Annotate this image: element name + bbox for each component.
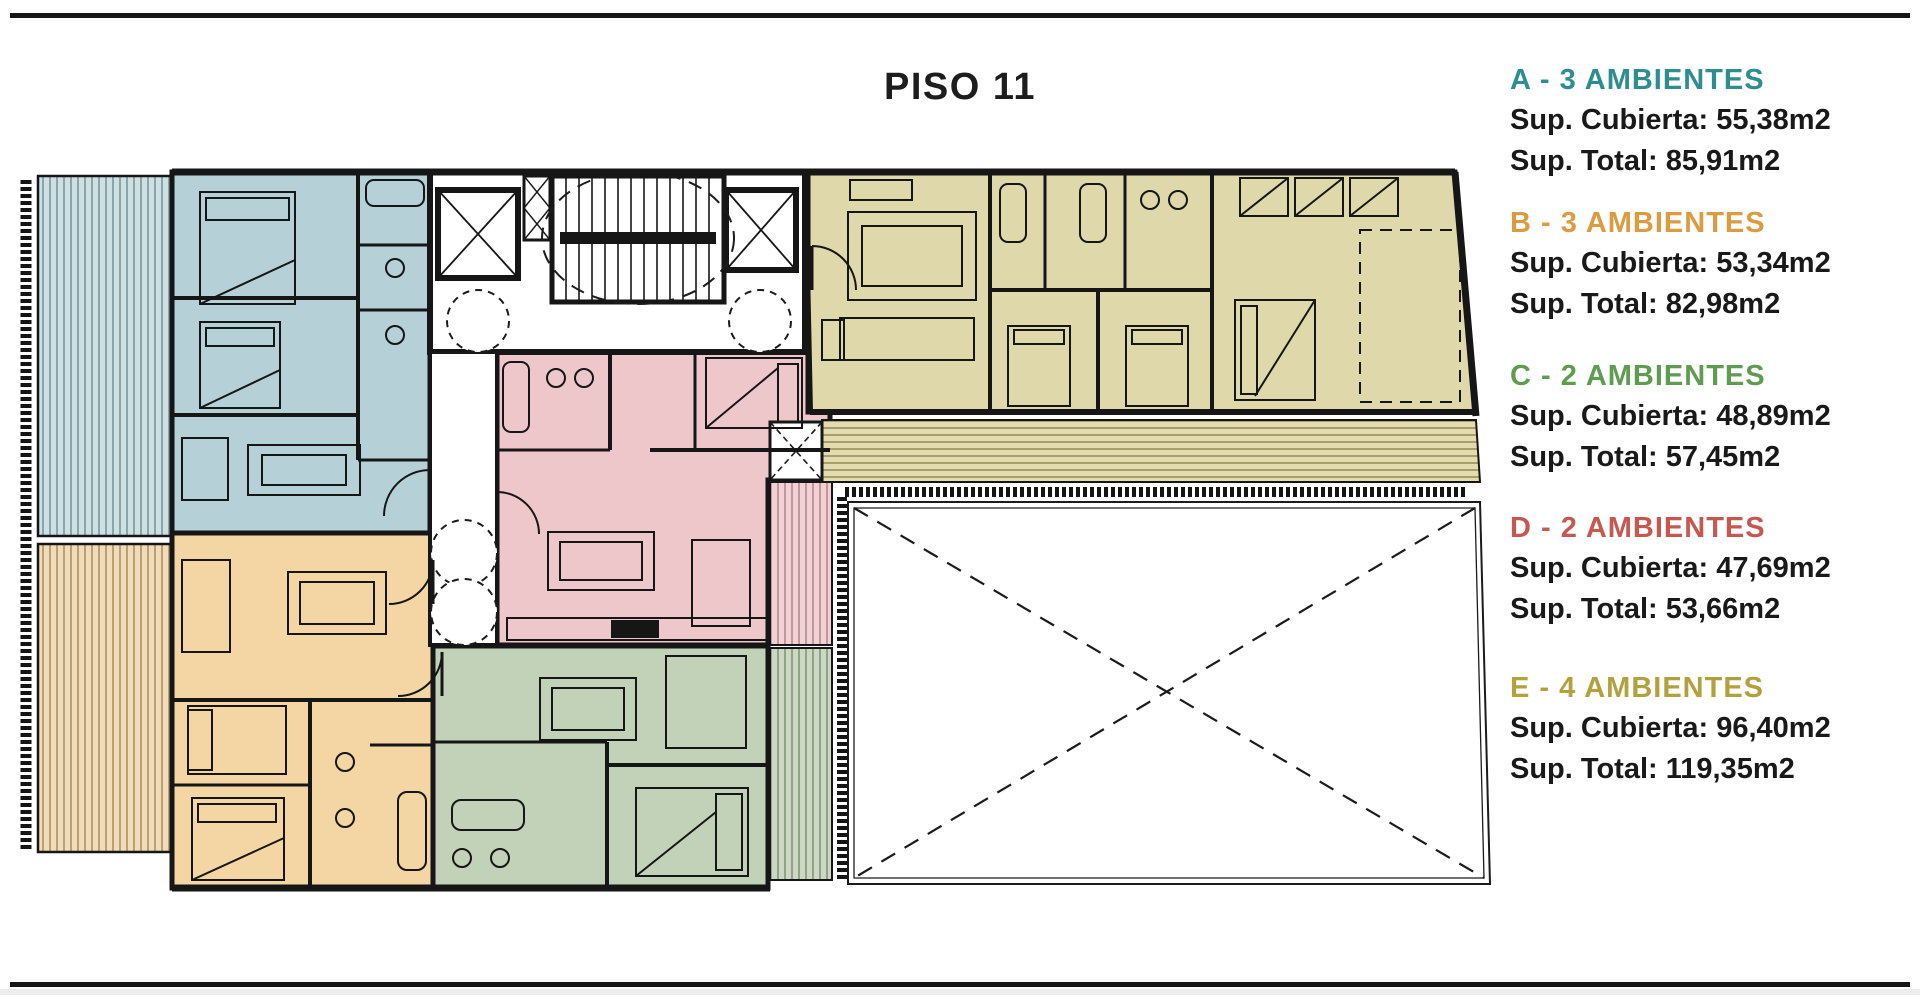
balcony-unit-b	[38, 544, 172, 852]
legend-unit-a-title: A - 3 AMBIENTES	[1510, 60, 1910, 100]
legend-unit-b-total: Sup. Total: 82,98m2	[1510, 284, 1910, 325]
legend-unit-e-total: Sup. Total: 119,35m2	[1510, 749, 1910, 790]
legend-unit-b: B - 3 AMBIENTES Sup. Cubierta: 53,34m2 S…	[1510, 203, 1910, 325]
balcony-unit-e	[822, 420, 1480, 482]
balcony-unit-c	[770, 648, 832, 880]
legend-unit-c-total: Sup. Total: 57,45m2	[1510, 437, 1910, 478]
balcony-unit-d	[770, 482, 832, 645]
legend-unit-e-cubierta: Sup. Cubierta: 96,40m2	[1510, 708, 1910, 749]
unit-a-area	[172, 172, 430, 533]
duct-shaft-icon	[524, 176, 550, 240]
elevator-left-icon	[438, 190, 518, 278]
legend-unit-d-cubierta: Sup. Cubierta: 47,69m2	[1510, 548, 1910, 589]
legend-unit-c-cubierta: Sup. Cubierta: 48,89m2	[1510, 396, 1910, 437]
legend-unit-b-title: B - 3 AMBIENTES	[1510, 203, 1910, 243]
staircase	[542, 172, 734, 304]
terrace	[848, 502, 1490, 884]
legend-unit-a-total: Sup. Total: 85,91m2	[1510, 141, 1910, 182]
legend-unit-d: D - 2 AMBIENTES Sup. Cubierta: 47,69m2 S…	[1510, 508, 1910, 630]
elevator-right-icon	[726, 190, 796, 270]
legend-unit-c: C - 2 AMBIENTES Sup. Cubierta: 48,89m2 S…	[1510, 356, 1910, 478]
balcony-unit-a	[38, 176, 172, 536]
legend-unit-c-title: C - 2 AMBIENTES	[1510, 356, 1910, 396]
legend-unit-a: A - 3 AMBIENTES Sup. Cubierta: 55,38m2 S…	[1510, 60, 1910, 182]
legend-unit-b-cubierta: Sup. Cubierta: 53,34m2	[1510, 243, 1910, 284]
legend-unit-d-total: Sup. Total: 53,66m2	[1510, 589, 1910, 630]
legend-unit-e: E - 4 AMBIENTES Sup. Cubierta: 96,40m2 S…	[1510, 668, 1910, 790]
legend-unit-e-title: E - 4 AMBIENTES	[1510, 668, 1910, 708]
legend-unit-a-cubierta: Sup. Cubierta: 55,38m2	[1510, 100, 1910, 141]
legend-unit-d-title: D - 2 AMBIENTES	[1510, 508, 1910, 548]
